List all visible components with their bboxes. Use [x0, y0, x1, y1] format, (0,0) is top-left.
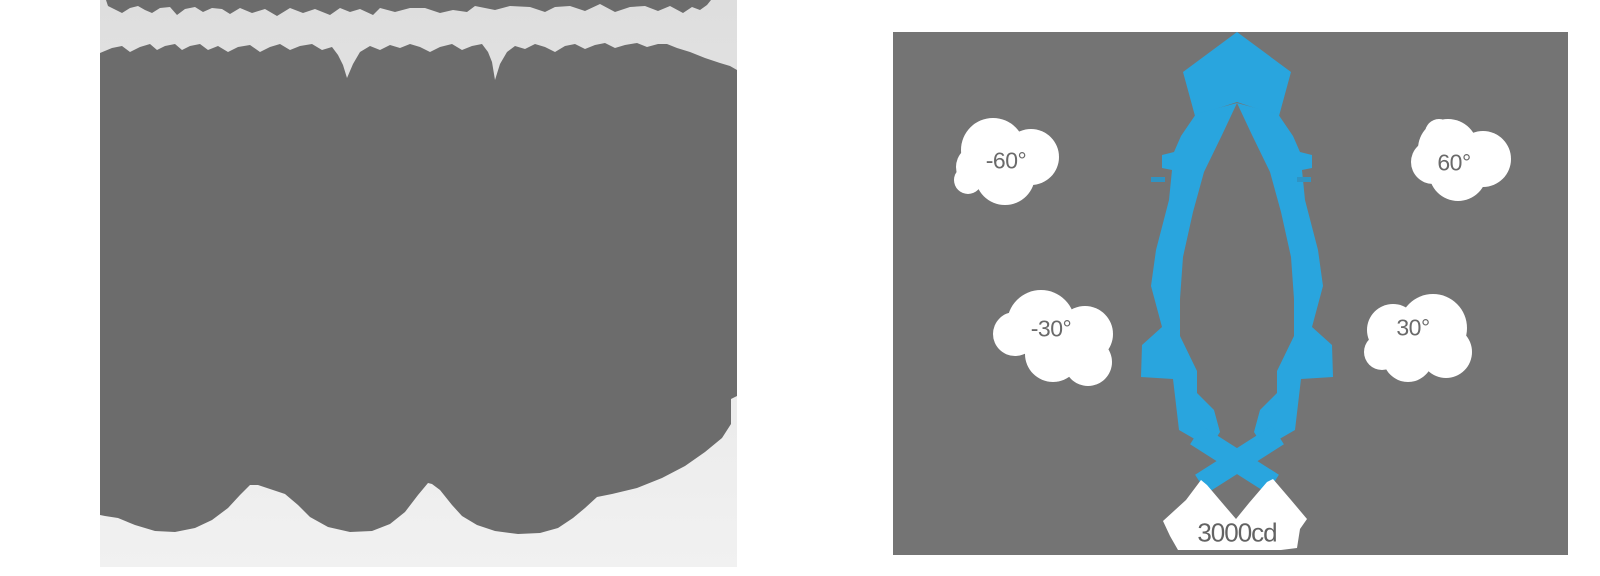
beam-right-flank [1237, 103, 1333, 448]
beam-distribution-chart: -60° 60° -30° 30° 3000cd [893, 32, 1568, 555]
beam-tick-right [1297, 177, 1311, 182]
angle-label-neg30: -30° [1031, 316, 1071, 343]
angle-label-pos60: 60° [1437, 150, 1470, 177]
main-image-blob [100, 43, 737, 534]
degraded-image-canvas [100, 0, 737, 567]
page: { "page": { "background": "#ffffff" }, "… [0, 0, 1600, 576]
angle-label-pos30: 30° [1396, 315, 1429, 342]
intensity-label: 3000cd [1197, 518, 1276, 549]
beam-curve [1141, 32, 1333, 484]
degraded-product-image [100, 0, 737, 567]
angle-label-neg60: -60° [986, 148, 1026, 175]
beam-left-flank [1141, 103, 1237, 448]
beam-bowtie-cross [1196, 435, 1278, 484]
beam-chart-canvas [893, 32, 1568, 555]
beam-peak-pentagon [1183, 32, 1291, 116]
beam-tick-left [1151, 177, 1165, 182]
